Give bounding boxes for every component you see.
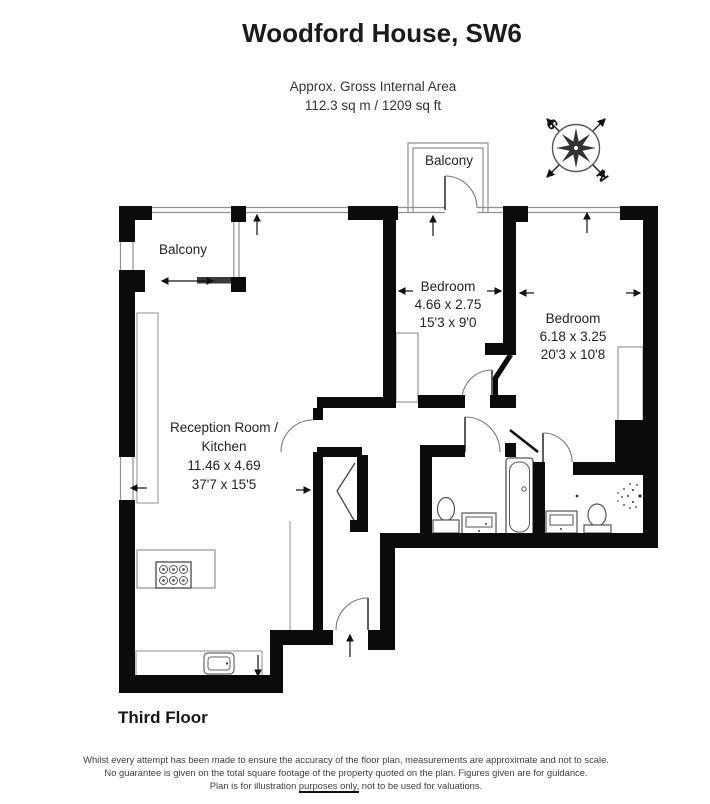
reception-size-imperial: 37'7 x 15'5: [170, 475, 278, 494]
reception-size-metric: 11.46 x 4.69: [170, 456, 278, 475]
wall: [533, 462, 545, 538]
disclaimer-text: Whilst every attempt has been made to en…: [0, 753, 692, 793]
vanity-2: [546, 511, 577, 533]
balcony-top-label: Balcony: [425, 153, 473, 168]
wall: [317, 397, 385, 408]
balcony-left-label: Balcony: [159, 242, 207, 257]
floor-label: Third Floor: [118, 708, 208, 728]
reception-name-line1: Reception Room /: [170, 418, 278, 437]
reception-door-arc: [281, 420, 313, 452]
bedroom1-name: Bedroom: [415, 278, 482, 296]
disclaimer-line-3-prefix: Plan is for illustration: [210, 780, 299, 791]
wall: [231, 206, 246, 222]
wall: [383, 206, 396, 408]
wall: [643, 206, 658, 548]
wall: [620, 206, 658, 220]
wall: [350, 520, 368, 532]
wall: [313, 452, 323, 633]
wall: [485, 343, 516, 355]
bedroom2-name: Bedroom: [540, 310, 607, 328]
shower-spray: [576, 483, 642, 509]
wall: [357, 455, 368, 530]
bedroom2-size-metric: 6.18 x 3.25: [540, 328, 607, 346]
entrance-door-arc: [336, 598, 368, 630]
wall: [573, 462, 615, 475]
reception-label: Reception Room / Kitchen 11.46 x 4.69 37…: [170, 418, 278, 494]
balcony-top-door-arc: [445, 176, 477, 210]
left-wall-window-lower: [121, 457, 134, 500]
compass-north-label: N: [593, 167, 612, 184]
wall: [119, 675, 283, 693]
kitchen-sink-tap: [226, 662, 228, 664]
bedroom1-label: Bedroom 4.66 x 2.75 15'3 x 9'0: [415, 278, 482, 332]
floorplan-page: { "header": { "title": "Woodford House, …: [0, 0, 710, 804]
wall: [119, 206, 135, 242]
bathroom-door-arc: [465, 417, 500, 452]
compass-rose: S N: [543, 116, 612, 185]
bedroom2-label: Bedroom 6.18 x 3.25 20'3 x 10'8: [540, 310, 607, 364]
balcony-left-sliding-door: [162, 277, 234, 284]
bedroom2-closet-chamfer: [493, 354, 513, 398]
bedroom2-wardrobe: [618, 347, 643, 428]
toilet-2: [584, 504, 611, 533]
left-wall-window-upper: [121, 242, 134, 270]
wall: [615, 420, 643, 475]
disclaimer-line-3: Plan is for illustration purposes only, …: [0, 779, 692, 792]
vanity-1: [462, 513, 496, 535]
bedroom2-top-window: [528, 208, 620, 213]
wall: [418, 395, 465, 408]
bedroom1-size-metric: 4.66 x 2.75: [415, 296, 482, 314]
wall: [270, 630, 333, 645]
wall: [119, 500, 135, 693]
bedroom1-door-arc: [462, 370, 492, 400]
wall: [505, 443, 516, 457]
ensuite-door-arc: [543, 433, 572, 462]
kitchen-counter: [136, 651, 262, 677]
bathtub: [506, 458, 533, 536]
bedroom2-size-imperial: 20'3 x 10'8: [540, 346, 607, 364]
wall: [380, 538, 395, 650]
bedroom1-wardrobe: [396, 333, 418, 402]
reception-name-line2: Kitchen: [170, 437, 278, 456]
compass-hub: [573, 145, 578, 150]
wall: [420, 455, 432, 538]
balcony-left-top-window: [152, 208, 231, 213]
floor-plan-drawing: S N: [0, 0, 710, 804]
disclaimer-line-2: No guarantee is given on the total squar…: [0, 766, 692, 779]
wall: [231, 277, 246, 292]
disclaimer-line-3-underlined: purposes only,: [299, 780, 359, 793]
wall: [317, 447, 362, 457]
reception-top-window: [246, 208, 348, 213]
wall: [119, 270, 145, 292]
wall: [119, 292, 135, 457]
hall-closet-bifold-doors: [337, 463, 355, 522]
bedroom1-top-window: [398, 208, 503, 213]
wall: [503, 220, 516, 353]
wall: [313, 408, 323, 420]
toilet-1: [433, 498, 459, 534]
wall: [503, 206, 528, 222]
bedroom1-size-imperial: 15'3 x 9'0: [415, 314, 482, 332]
disclaimer-line-3-suffix: not to be used for valuations.: [359, 780, 482, 791]
disclaimer-line-1: Whilst every attempt has been made to en…: [0, 753, 692, 766]
reception-side-unit: [137, 313, 158, 503]
